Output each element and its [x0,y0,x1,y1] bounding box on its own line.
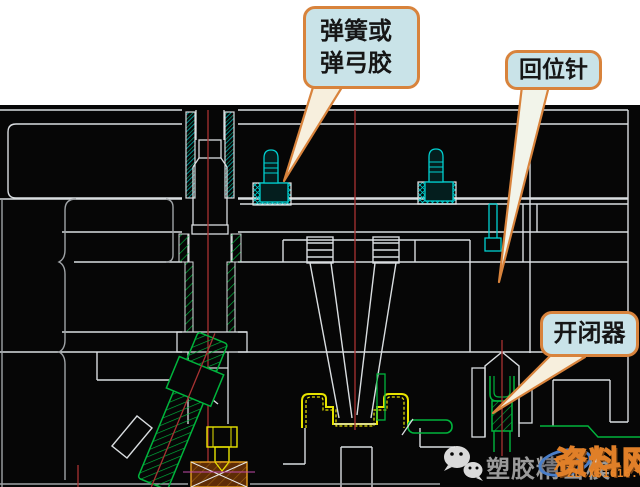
callout-opener: 开闭器 [540,311,639,357]
callout-opener-label: 开闭器 [543,318,636,350]
callout-return-pin: 回位针 [505,50,602,90]
callout-spring: 弹簧或 弹弓胶 [303,6,420,89]
cad-canvas [0,105,640,487]
callout-spring-label: 弹簧或 弹弓胶 [306,16,417,79]
screenshot: 弹簧或 弹弓胶 回位针 开闭器 塑胶精密模 XS 资料网 ZL.XS1616.C… [0,0,640,487]
watermark-site-url: ZL.XS1616.COM [567,467,640,480]
callout-return-pin-label: 回位针 [508,55,599,85]
